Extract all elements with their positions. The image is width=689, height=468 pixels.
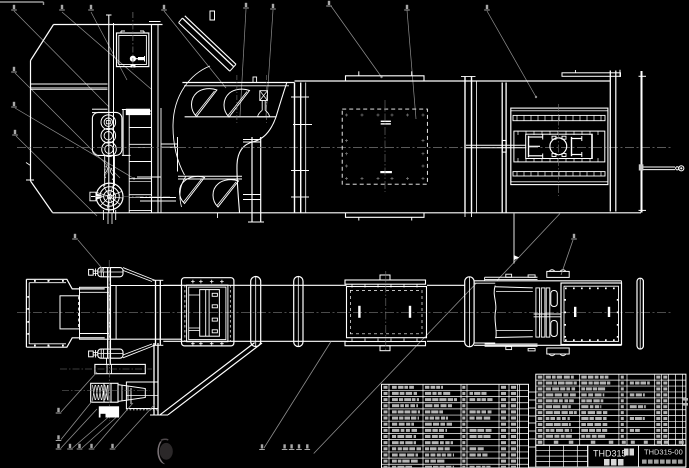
svg-text:THD315-00: THD315-00	[644, 448, 683, 457]
svg-text:THD315: THD315	[593, 449, 627, 459]
